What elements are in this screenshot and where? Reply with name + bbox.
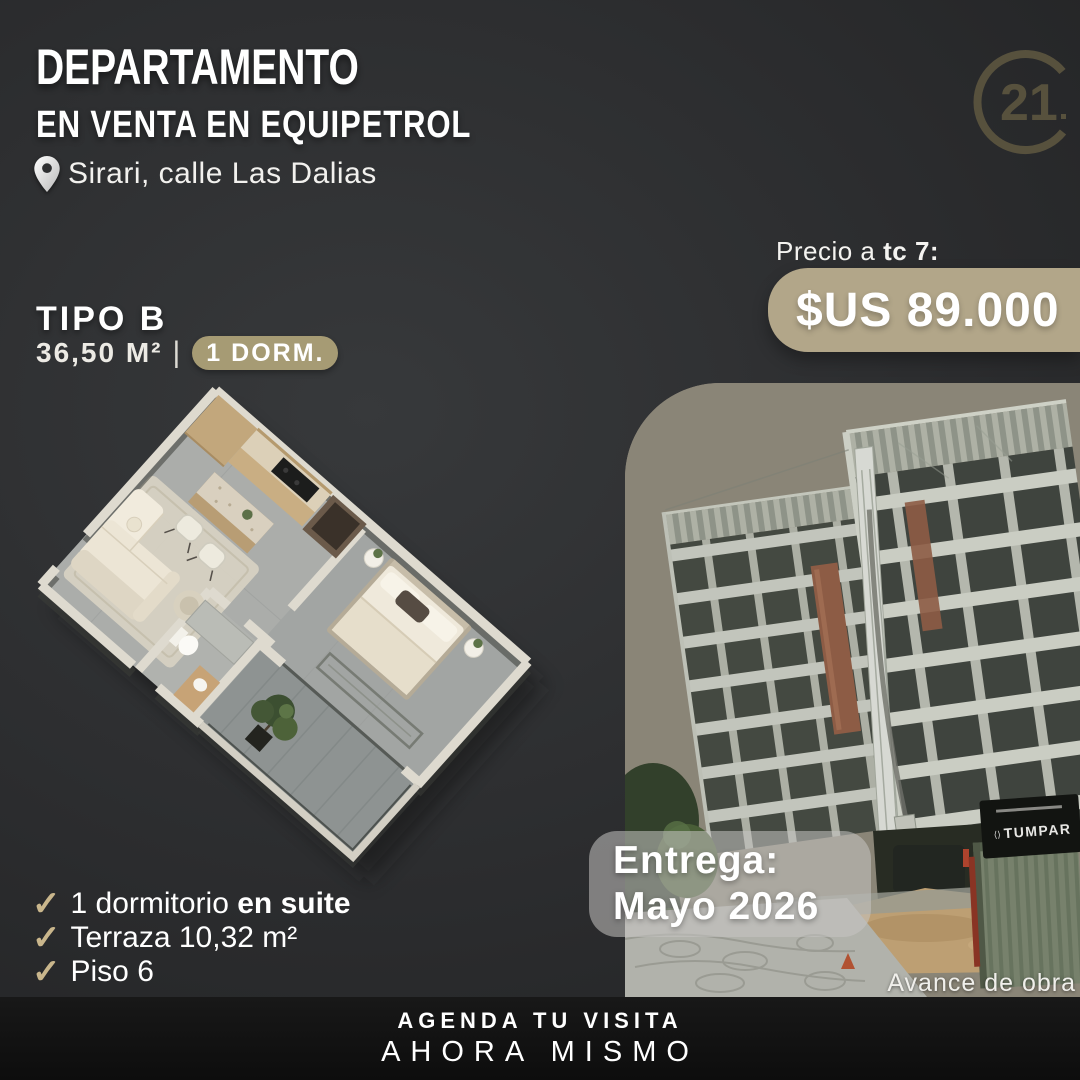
feature-item: ✓ Terraza 10,32 m² <box>32 920 351 954</box>
cta-line2: AHORA MISMO <box>381 1036 699 1069</box>
location-row: Sirari, calle Las Dalias <box>34 156 377 192</box>
delivery-line2: Mayo 2026 <box>613 884 871 930</box>
flyer-canvas: DEPARTAMENTO EN VENTA EN EQUIPETROL Sira… <box>0 0 1080 1080</box>
check-icon: ✓ <box>32 888 61 920</box>
delivery-line1: Entrega: <box>613 838 871 884</box>
price-label: Precio a tc 7: <box>776 236 939 267</box>
cta-footer: AGENDA TU VISITA AHORA MISMO <box>0 997 1080 1080</box>
delivery-badge: Entrega: Mayo 2026 <box>589 831 871 937</box>
feature-text-bold: en suite <box>237 887 350 920</box>
location-pin-icon <box>34 156 60 192</box>
price-box: $US 89.000 <box>768 268 1080 352</box>
feature-text: Piso 6 <box>71 955 154 988</box>
page-subtitle: EN VENTA EN EQUIPETROL <box>36 104 567 146</box>
page-title: DEPARTAMENTO <box>36 42 450 92</box>
price-value: $US 89.000 <box>796 283 1060 338</box>
feature-text: Terraza 10,32 m² <box>71 921 298 954</box>
century21-logo: 21 <box>958 38 1080 166</box>
photo-caption: Avance de obra <box>887 969 1076 998</box>
location-text: Sirari, calle Las Dalias <box>68 157 377 191</box>
feature-item: ✓ 1 dormitorio en suite <box>32 886 351 920</box>
feature-item: ✓ Piso 6 <box>32 954 351 988</box>
feature-list: ✓ 1 dormitorio en suite ✓ Terraza 10,32 … <box>32 886 351 988</box>
check-icon: ✓ <box>32 956 61 988</box>
cta-line1: AGENDA TU VISITA <box>397 1008 682 1034</box>
feature-text: 1 dormitorio <box>71 887 238 920</box>
svg-text:21: 21 <box>1000 74 1058 132</box>
unit-type: TIPO B <box>36 300 167 339</box>
check-icon: ✓ <box>32 922 61 954</box>
floor-plan-image <box>16 360 564 900</box>
